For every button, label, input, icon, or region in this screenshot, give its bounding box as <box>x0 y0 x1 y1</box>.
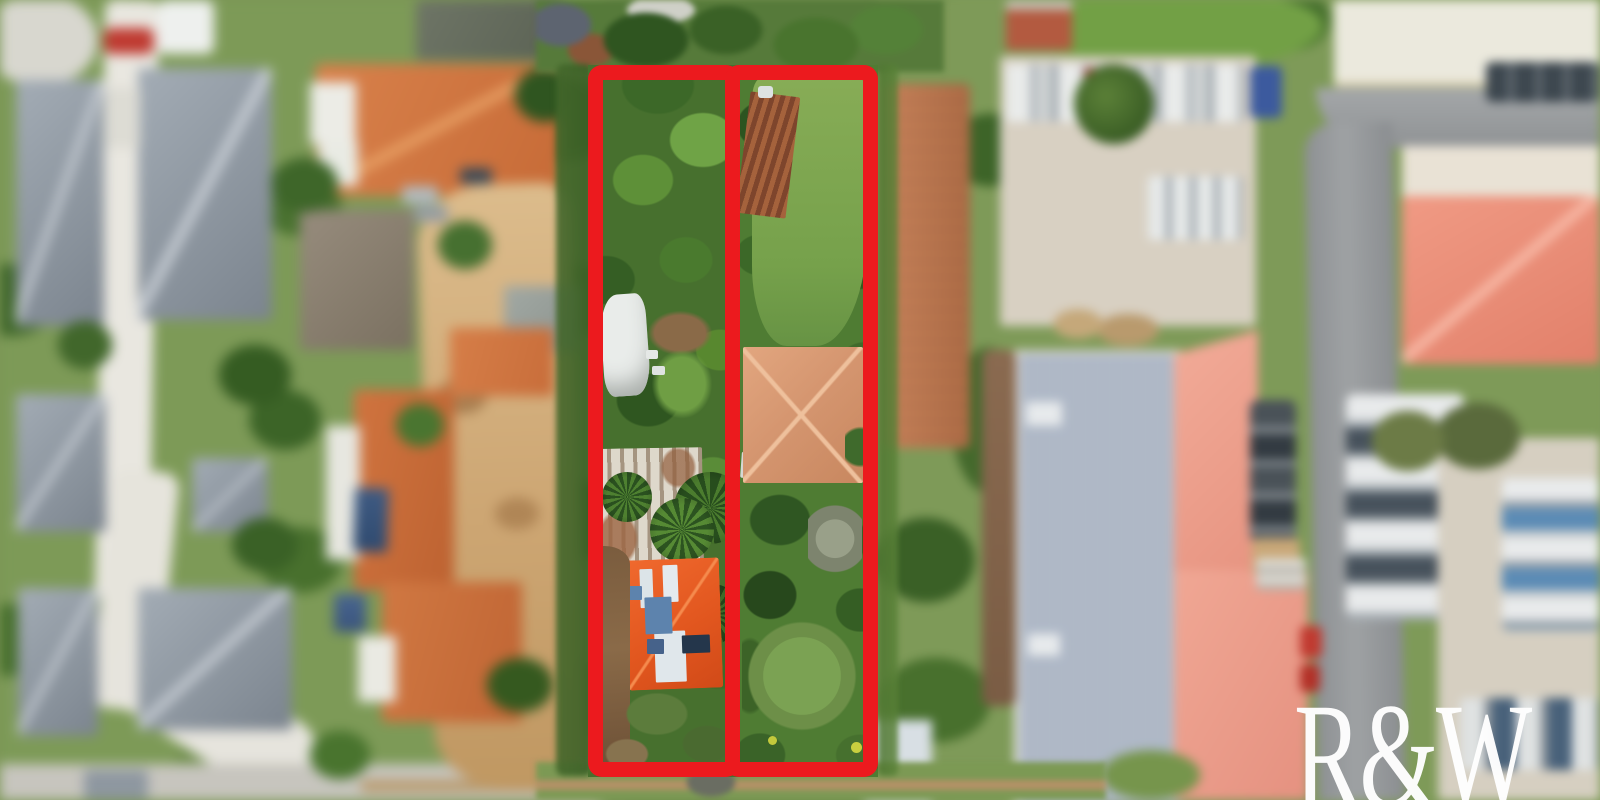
lot-boundary-right <box>725 65 878 777</box>
agency-watermark-logo: R&W <box>1294 681 1529 800</box>
lot-boundary-left <box>588 65 740 777</box>
aerial-photo-stage: R&W <box>0 0 1600 800</box>
